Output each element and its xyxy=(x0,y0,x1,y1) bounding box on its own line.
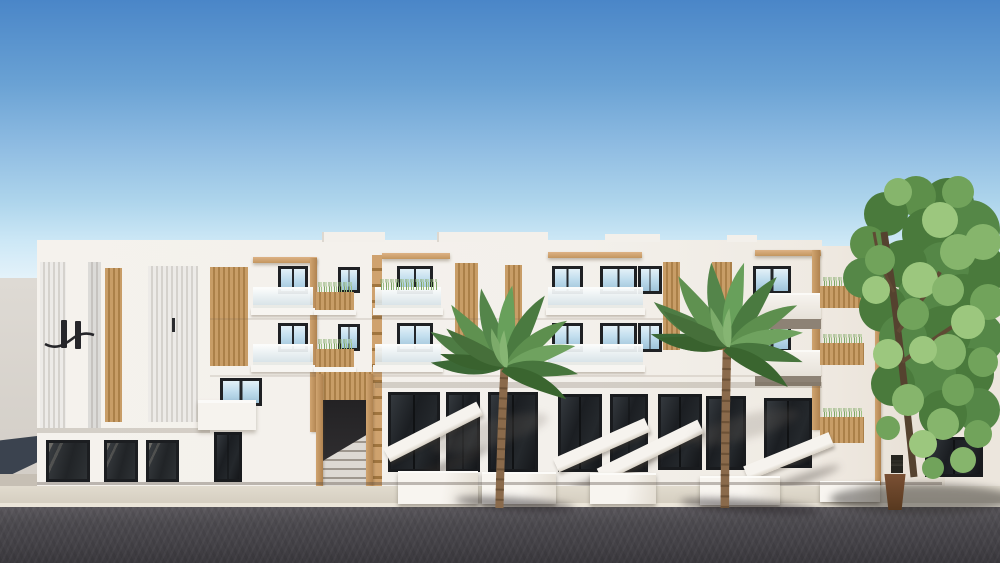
palm-tree xyxy=(422,288,587,508)
storefront-window xyxy=(146,440,179,482)
overhang-shadow xyxy=(37,428,210,433)
pergola-beam xyxy=(382,253,450,259)
logo-swoosh xyxy=(44,326,96,350)
slit-window xyxy=(172,318,175,332)
planter-box xyxy=(316,349,354,367)
palm-tree xyxy=(642,262,812,508)
parapet-block xyxy=(322,232,385,242)
wood-slat-panel xyxy=(210,267,248,366)
parapet-block xyxy=(605,234,660,242)
planter-box xyxy=(316,292,354,310)
wood-slat-panel xyxy=(105,268,122,422)
leafy-tree xyxy=(828,172,1000,490)
entrance-door xyxy=(214,432,242,482)
storefront-window xyxy=(104,440,138,482)
balcony-rail xyxy=(253,344,313,365)
balcony-slab xyxy=(251,365,315,372)
balcony-slab xyxy=(251,308,315,315)
road xyxy=(0,507,1000,563)
parapet-block xyxy=(727,235,757,242)
pergola-post xyxy=(812,250,820,430)
storefront-window xyxy=(46,440,90,482)
pergola-beam xyxy=(253,257,317,263)
logo-h: H xyxy=(44,316,96,352)
fluted-panel xyxy=(148,266,198,422)
architectural-render: H xyxy=(0,0,1000,563)
stair-transom xyxy=(316,372,373,402)
planter-slab xyxy=(314,310,356,315)
parapet-block xyxy=(437,232,548,242)
balcony-rail xyxy=(253,287,313,308)
pergola-beam xyxy=(548,252,642,258)
small-balcony xyxy=(198,400,256,430)
